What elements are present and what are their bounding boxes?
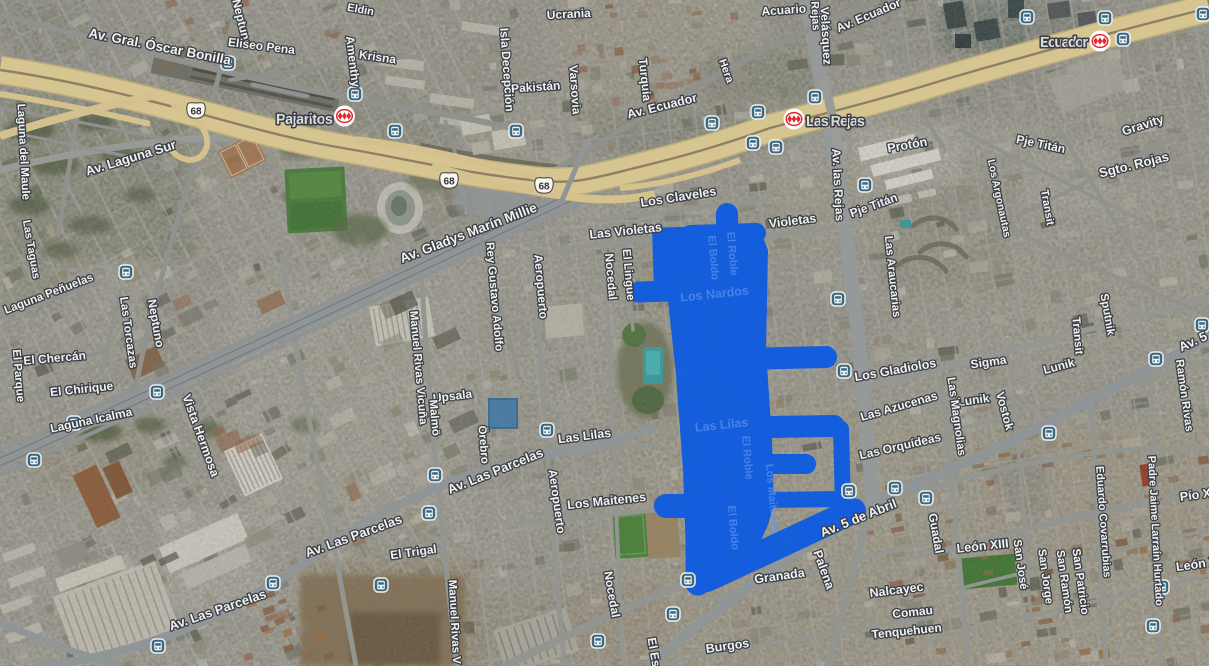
svg-text:68: 68 xyxy=(443,177,455,188)
svg-text:Ucrania: Ucrania xyxy=(546,6,591,22)
svg-text:Rejas: Rejas xyxy=(808,1,822,31)
svg-text:68: 68 xyxy=(538,182,550,193)
svg-text:Ecuador: Ecuador xyxy=(1040,35,1088,51)
svg-text:68: 68 xyxy=(190,107,202,118)
svg-text:Las Rejas: Las Rejas xyxy=(806,114,865,130)
svg-text:Pajaritos: Pajaritos xyxy=(276,112,333,128)
